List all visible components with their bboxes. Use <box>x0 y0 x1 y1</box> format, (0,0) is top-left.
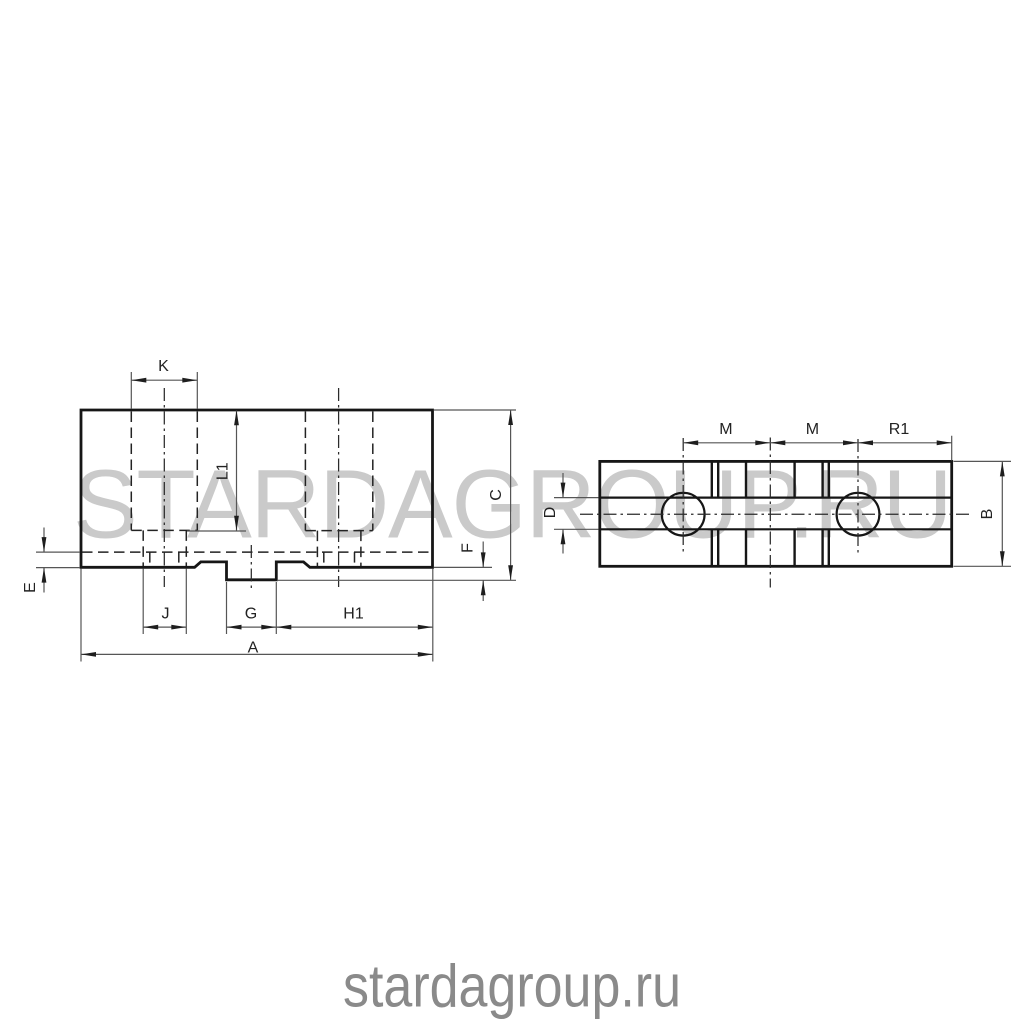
svg-text:M: M <box>806 421 819 438</box>
svg-text:K: K <box>158 358 169 375</box>
svg-text:H1: H1 <box>343 606 364 623</box>
svg-text:STARDAGROUP.RU: STARDAGROUP.RU <box>73 450 951 559</box>
svg-text:G: G <box>245 606 257 623</box>
svg-text:F: F <box>460 543 477 553</box>
svg-text:M: M <box>719 421 732 438</box>
svg-text:A: A <box>248 639 259 656</box>
svg-text:B: B <box>979 509 996 520</box>
svg-text:E: E <box>22 582 39 593</box>
svg-text:R1: R1 <box>889 421 910 438</box>
svg-text:D: D <box>542 507 559 519</box>
svg-text:L1: L1 <box>214 462 231 480</box>
svg-text:stardagroup.ru: stardagroup.ru <box>343 953 681 1020</box>
svg-text:C: C <box>488 489 505 501</box>
svg-text:J: J <box>162 606 170 623</box>
